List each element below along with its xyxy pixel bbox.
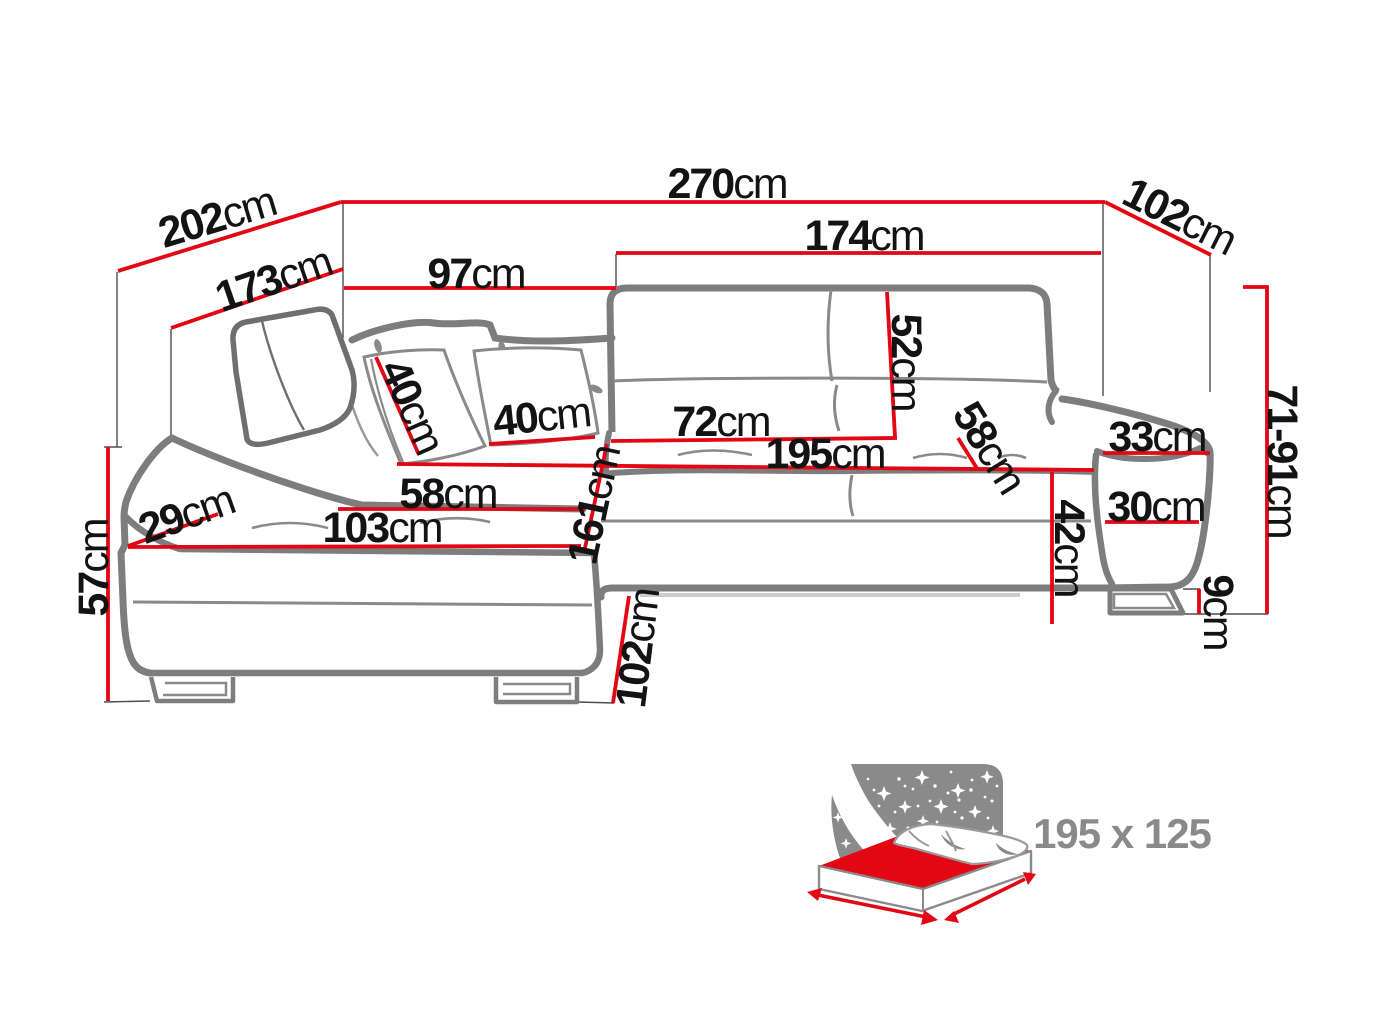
svg-text:72cm: 72cm [672,398,769,446]
svg-text:71-91cm: 71-91cm [1258,384,1306,537]
svg-text:195 x 125: 195 x 125 [1033,810,1211,857]
svg-text:40cm: 40cm [491,388,593,446]
svg-text:42cm: 42cm [1045,499,1093,596]
svg-text:97cm: 97cm [427,250,524,298]
svg-text:195cm: 195cm [765,430,884,478]
svg-text:9cm: 9cm [1194,574,1242,649]
svg-text:57cm: 57cm [70,519,118,616]
svg-text:52cm: 52cm [882,313,930,410]
svg-text:58cm: 58cm [399,470,496,518]
svg-text:270cm: 270cm [667,160,786,208]
svg-text:33cm: 33cm [1108,413,1205,461]
svg-text:174cm: 174cm [804,212,923,260]
svg-text:30cm: 30cm [1107,483,1204,531]
